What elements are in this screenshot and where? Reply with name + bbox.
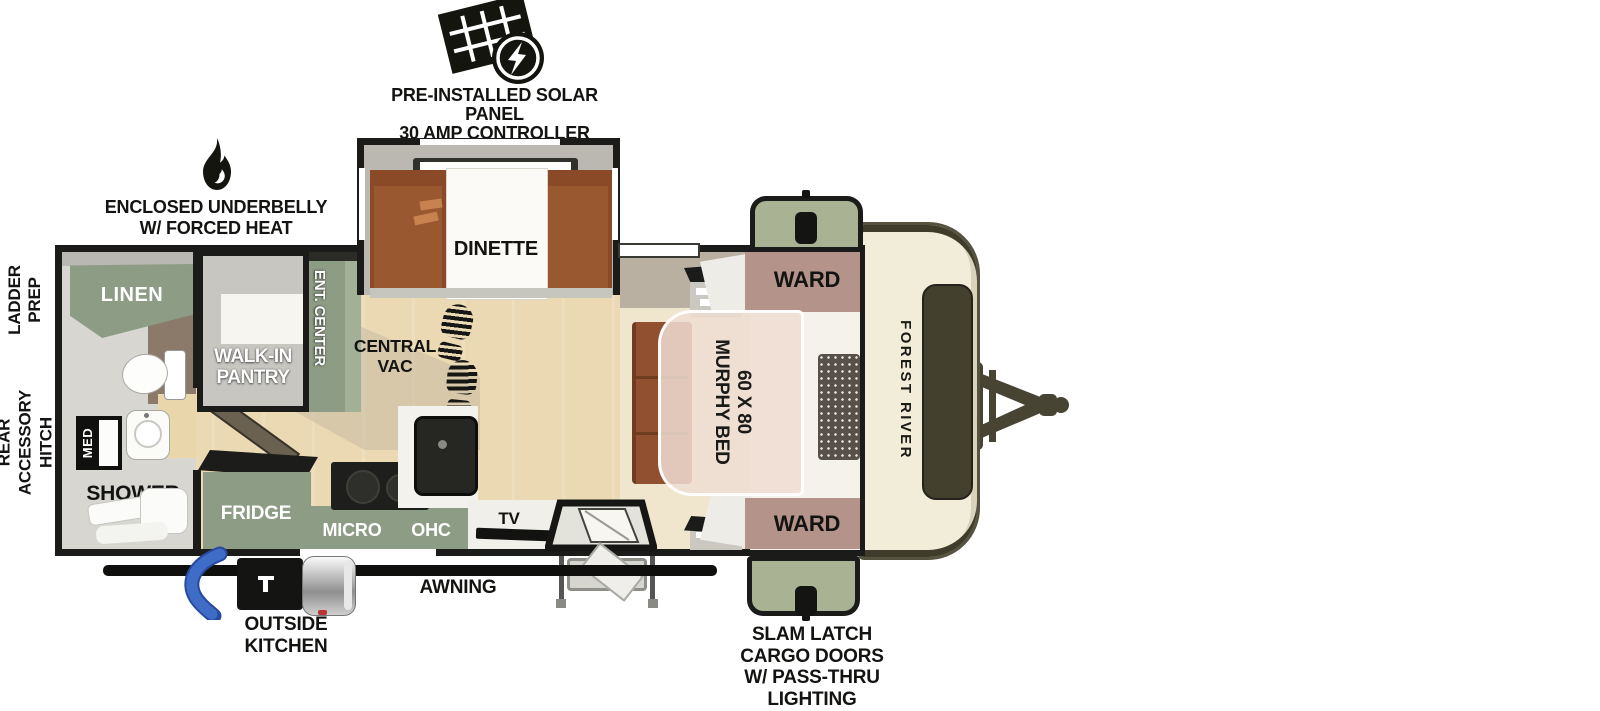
underbelly-callout: ENCLOSED UNDERBELLY W/ FORCED HEAT	[85, 197, 347, 239]
dinette-side-window-left	[359, 168, 365, 240]
step-foot-right	[648, 599, 658, 608]
underbelly-line1: ENCLOSED UNDERBELLY	[85, 197, 347, 218]
central-vac-line1: CENTRAL	[352, 336, 438, 356]
linen-label: LINEN	[70, 284, 194, 306]
ward-top-label: WARD	[757, 268, 857, 293]
sink-faucet	[144, 413, 149, 418]
murphy-bed-line2: MURPHY BED	[710, 302, 732, 502]
murphy-bed-label: 60 X 80 MURPHY BED	[708, 302, 754, 502]
bedroom-top-window	[618, 243, 700, 258]
cargo-door-top-knob	[802, 190, 810, 198]
sink-basin	[134, 420, 162, 448]
cargo-callout-line1: SLAM LATCH	[722, 624, 902, 646]
cargo-door-bottom-latch	[795, 586, 817, 616]
ohc-label: OHC	[402, 520, 460, 540]
med-label: MED	[81, 421, 95, 465]
dinette-window-slot	[420, 139, 560, 145]
dinette-side-window-right	[612, 168, 618, 240]
ladder-prep-line1: LADDER	[5, 250, 25, 350]
outside-griddle-cap	[344, 560, 352, 610]
rear-hitch-line1: REAR	[0, 348, 15, 538]
cargo-door-top-latch	[795, 212, 817, 244]
murphy-bed-line1: 60 X 80	[732, 302, 754, 502]
rear-accessory-hitch-label: REAR ACCESSORY HITCH	[0, 348, 57, 538]
bathroom-wall-lower	[193, 470, 201, 549]
cooktop-burner-1	[346, 470, 380, 504]
tv-label: TV	[486, 509, 532, 528]
outside-kitchen-box	[237, 558, 303, 610]
med-cabinet-door	[99, 420, 118, 466]
solar-callout-line1: PRE-INSTALLED SOLAR PANEL	[362, 86, 627, 124]
front-cap-window	[922, 284, 973, 500]
utility-hose	[180, 546, 244, 620]
solar-panel-icon	[436, 0, 554, 92]
ward-bottom-label: WARD	[757, 512, 857, 537]
bathroom-top-wall-band	[62, 252, 196, 266]
outside-kitchen-handle-v	[263, 580, 268, 592]
flame-icon	[199, 138, 235, 192]
rear-hitch-line2: ACCESSORY	[15, 348, 36, 538]
underbelly-line2: W/ FORCED HEAT	[85, 218, 347, 239]
boot-sole	[439, 301, 476, 341]
dinette-bench-right-cushion	[548, 186, 608, 288]
central-vac-line2: VAC	[352, 356, 438, 376]
rear-hitch-line3: HITCH	[36, 348, 57, 538]
ladder-prep-label: LADDER PREP	[5, 250, 47, 350]
dinette-table	[446, 168, 548, 300]
micro-label: MICRO	[314, 520, 390, 540]
kitchen-bottom-window	[300, 549, 436, 556]
cargo-callout-line3: W/ PASS-THRU	[722, 667, 902, 689]
awning-label: AWNING	[398, 577, 518, 598]
kitchen-faucet	[438, 440, 447, 449]
cargo-callout-line4: LIGHTING	[722, 689, 902, 711]
boot-sole	[445, 359, 478, 396]
floorplan-canvas: PRE-INSTALLED SOLAR PANEL 30 AMP CONTROL…	[0, 0, 1600, 711]
kitchen-sink	[414, 416, 478, 496]
pantry-label-line1: WALK-IN	[199, 346, 307, 367]
cargo-door-bottom-knob	[802, 614, 810, 621]
ladder-prep-line2: PREP	[25, 250, 45, 350]
bed-quilt-pad	[818, 354, 860, 460]
central-vac-label: CENTRAL VAC	[352, 336, 438, 376]
outside-kitchen-line1: OUTSIDE	[226, 614, 346, 636]
pantry-label: WALK-IN PANTRY	[199, 346, 307, 388]
step-rail-right	[650, 556, 655, 603]
brand-decal: FOREST RIVER	[893, 284, 913, 496]
outside-kitchen-callout: OUTSIDE KITCHEN	[226, 614, 346, 658]
cargo-doors-callout: SLAM LATCH CARGO DOORS W/ PASS-THRU LIGH…	[722, 624, 902, 710]
dinette-label: DINETTE	[436, 238, 556, 260]
cargo-callout-line2: CARGO DOORS	[722, 646, 902, 668]
step-rail-left	[559, 556, 564, 603]
fridge-label: FRIDGE	[206, 503, 306, 524]
pantry-shelf	[221, 294, 303, 344]
dinette-base-strip	[370, 288, 612, 298]
step-foot-left	[556, 599, 566, 608]
pantry-label-line2: PANTRY	[199, 367, 307, 388]
outside-kitchen-line2: KITCHEN	[226, 636, 346, 658]
ent-center-label: ENT. CENTER	[309, 238, 327, 398]
